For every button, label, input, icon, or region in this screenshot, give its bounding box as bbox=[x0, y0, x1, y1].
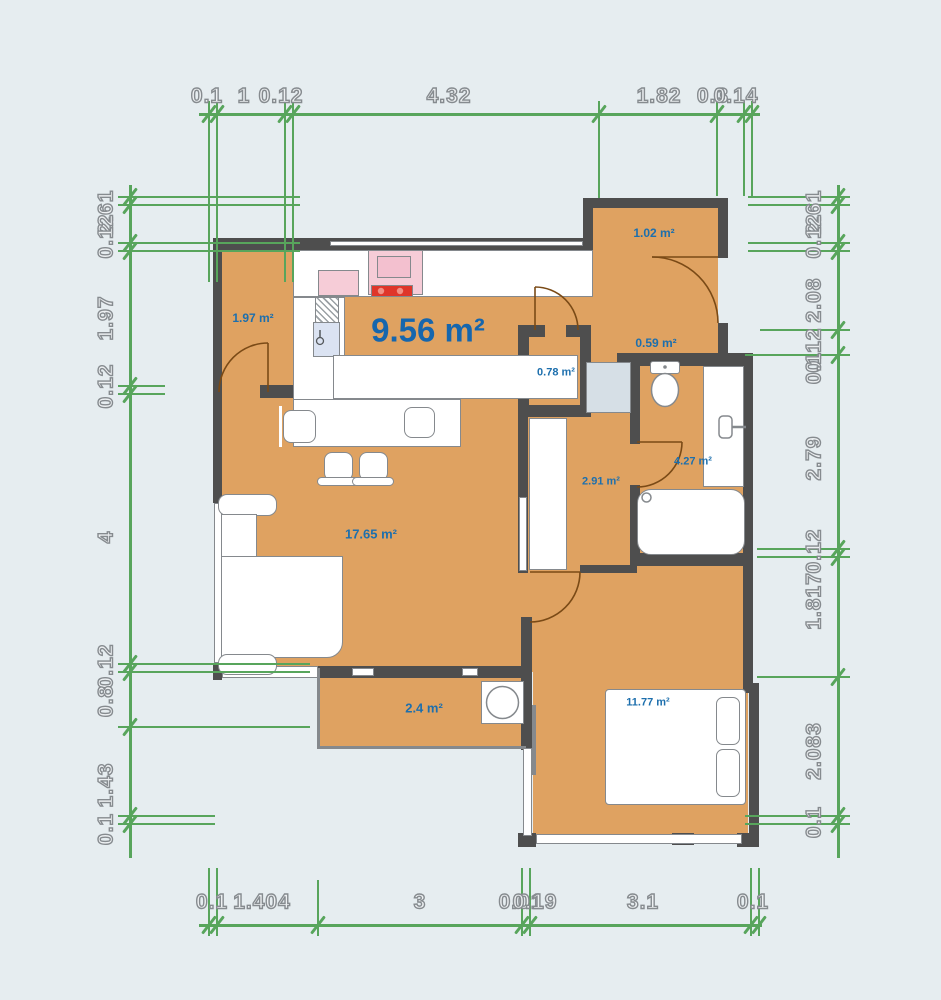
counter-divider bbox=[461, 252, 463, 295]
toilet-tank bbox=[650, 361, 680, 374]
wall-segment bbox=[630, 366, 640, 444]
dimension-guide bbox=[118, 671, 310, 673]
cooktop bbox=[371, 285, 413, 297]
room-area-label-kitchen: 9.56 m² bbox=[371, 314, 485, 347]
room-area-label-closet: 0.78 m² bbox=[537, 368, 575, 379]
wall-segment bbox=[518, 405, 591, 417]
dimension-label: 1.817 bbox=[804, 572, 825, 630]
wall-segment bbox=[743, 563, 753, 685]
dimension-label: 3 bbox=[414, 892, 427, 913]
room-area-label-corridor: 2.91 m² bbox=[582, 477, 620, 488]
kitchen-island bbox=[293, 399, 461, 447]
dimension-guide bbox=[757, 676, 850, 678]
window bbox=[523, 748, 532, 836]
dimension-guide bbox=[745, 815, 850, 817]
dimension-label: 0.12 bbox=[804, 214, 825, 259]
dimension-label: 1 bbox=[238, 86, 251, 107]
dimension-guide bbox=[716, 101, 718, 196]
dimension-guide bbox=[748, 196, 850, 198]
window bbox=[519, 497, 527, 571]
dimension-label: 0.1 bbox=[191, 86, 223, 107]
dimension-label: 0.14 bbox=[714, 86, 759, 107]
rail-line bbox=[532, 705, 536, 775]
window bbox=[462, 668, 478, 676]
dimension-label: 1.82 bbox=[637, 86, 682, 107]
dimension-guide bbox=[317, 880, 319, 936]
stool-rail bbox=[279, 406, 282, 447]
room-area-label-loggia-top: 1.02 m² bbox=[633, 227, 674, 239]
dimension-guide bbox=[745, 354, 850, 356]
dimension-guide bbox=[118, 196, 300, 198]
duct-shaft bbox=[586, 362, 631, 413]
wall-segment bbox=[617, 353, 753, 366]
stool bbox=[404, 407, 435, 438]
dimension-label: 2.083 bbox=[804, 722, 825, 780]
dimension-label: 0.12 bbox=[96, 644, 117, 689]
wall-segment bbox=[260, 385, 293, 398]
dimension-guide bbox=[598, 101, 600, 198]
dimension-line bbox=[837, 185, 840, 858]
wall-segment bbox=[718, 198, 728, 258]
pillow bbox=[716, 749, 740, 797]
washing-machine bbox=[481, 681, 524, 724]
dimension-line bbox=[199, 924, 762, 927]
stool-rail bbox=[352, 477, 394, 486]
dimension-guide bbox=[118, 663, 310, 665]
dimension-guide bbox=[284, 101, 286, 282]
window bbox=[330, 241, 583, 246]
dimension-label: 4 bbox=[96, 531, 117, 544]
wall-segment bbox=[521, 617, 532, 668]
dimension-guide bbox=[118, 823, 215, 825]
dimension-guide bbox=[118, 242, 300, 244]
dimension-label: 0.1 bbox=[804, 352, 825, 384]
room-area-label-bedroom: 11.77 m² bbox=[626, 698, 669, 709]
room-area-label-balcony: 2.4 m² bbox=[405, 702, 443, 715]
stove-top bbox=[377, 256, 411, 278]
bathtub bbox=[637, 489, 745, 555]
floor-plan-canvas: 1.97 m²9.56 m²1.02 m²0.59 m²0.78 m²4.27 … bbox=[0, 0, 941, 1000]
sofa-armrest bbox=[218, 494, 277, 516]
dimension-guide bbox=[751, 101, 753, 196]
counter-divider bbox=[423, 252, 425, 295]
dimension-guide bbox=[208, 101, 210, 282]
rail-line bbox=[317, 668, 320, 749]
dimension-label: 1.43 bbox=[96, 763, 117, 808]
dimension-label: 0.1 bbox=[804, 806, 825, 838]
dimension-guide bbox=[118, 250, 300, 252]
dimension-line bbox=[129, 185, 132, 858]
stool bbox=[283, 410, 316, 443]
dimension-guide bbox=[743, 101, 745, 196]
dimension-label: 0.1 bbox=[96, 813, 117, 845]
dimension-guide bbox=[216, 101, 218, 282]
dimension-guide bbox=[118, 204, 300, 206]
dimension-guide bbox=[748, 250, 850, 252]
window bbox=[536, 834, 742, 844]
dimension-label: 0.12 bbox=[96, 214, 117, 259]
room-area-label-bathroom: 4.27 m² bbox=[674, 457, 712, 468]
dimension-guide bbox=[745, 823, 850, 825]
dimension-label: 1.97 bbox=[96, 296, 117, 341]
dimension-guide bbox=[292, 101, 294, 282]
small-appliance bbox=[318, 270, 359, 296]
dimension-label: 0.12 bbox=[259, 86, 304, 107]
pillow bbox=[716, 697, 740, 745]
dimension-guide bbox=[118, 726, 310, 728]
wall-segment bbox=[583, 198, 728, 208]
dimension-label: 3.1 bbox=[627, 892, 659, 913]
dimension-label: 0.1 bbox=[737, 892, 769, 913]
dimension-guide bbox=[118, 393, 165, 395]
room-area-label-hall: 0.59 m² bbox=[635, 337, 676, 349]
wardrobe bbox=[529, 418, 567, 570]
room-area-label-living-room: 17.65 m² bbox=[345, 528, 397, 541]
vanity-divider bbox=[733, 368, 735, 485]
dimension-guide bbox=[748, 242, 850, 244]
vanity bbox=[703, 366, 744, 487]
dimension-label: 1.404 bbox=[233, 892, 291, 913]
wall-segment bbox=[318, 666, 522, 678]
dimension-label: 0.12 bbox=[804, 529, 825, 574]
sofa-seat bbox=[221, 556, 343, 658]
room-area-label-entry: 1.97 m² bbox=[232, 312, 273, 324]
dimension-label: 2.08 bbox=[804, 278, 825, 323]
rail-line bbox=[317, 746, 526, 749]
dimension-guide bbox=[118, 385, 165, 387]
dimension-guide bbox=[748, 204, 850, 206]
dimension-label: 2.79 bbox=[804, 436, 825, 481]
dimension-label: 0.12 bbox=[96, 364, 117, 409]
dimension-label: 0.19 bbox=[513, 892, 558, 913]
window bbox=[352, 668, 374, 676]
dimension-label: 0.1 bbox=[196, 892, 228, 913]
wall-segment bbox=[580, 565, 637, 573]
dimension-label: 0.8 bbox=[96, 685, 117, 717]
dimension-label: 4.32 bbox=[427, 86, 472, 107]
kitchen-sink bbox=[313, 322, 340, 357]
stool-rail bbox=[437, 403, 440, 444]
